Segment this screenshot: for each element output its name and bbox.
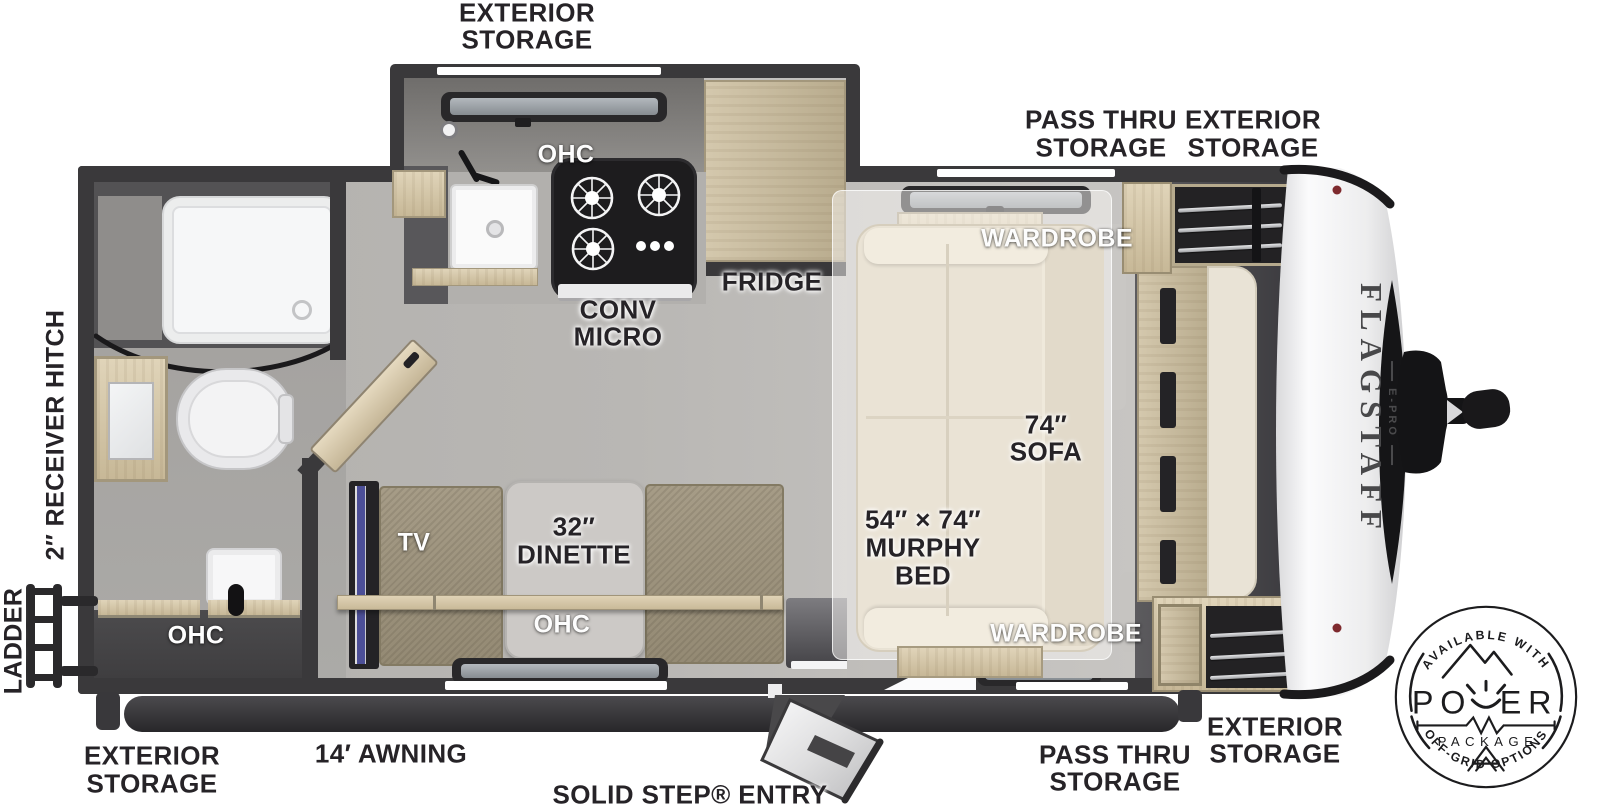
window-strip-top-right — [937, 169, 1115, 177]
mirror — [108, 382, 154, 460]
propane-cover — [1396, 350, 1448, 473]
sink-cabinet-edge — [412, 268, 538, 286]
vanity-counter-left — [98, 600, 200, 618]
front-column-slot-3 — [1160, 456, 1176, 512]
flagstaff-logo-text: FLAGSTAFF — [1353, 283, 1389, 537]
cooktop — [551, 158, 697, 300]
bath-wall-lower — [302, 458, 318, 678]
label-pass-thru-top-1: PASS THRU — [1025, 105, 1177, 136]
fridge-cabinet — [704, 80, 846, 262]
label-ohc-dinette: OHC — [534, 611, 591, 640]
marker-light-bottom — [1333, 624, 1342, 633]
rear-ladder — [24, 582, 100, 692]
front-column-slot-1 — [1160, 288, 1176, 344]
passthru-bottom-door — [1158, 604, 1202, 686]
label-ohc-bath: OHC — [168, 622, 225, 651]
rv-floorplan: FLAGSTAFF E-PRO — [0, 0, 1600, 808]
ohc-shelf-notch-1 — [433, 595, 436, 610]
dinette-bench-left — [379, 486, 503, 666]
power-package-badge: AVAILABLE WITH PO ER PACKAGE OFF-GRID OP… — [1388, 599, 1584, 795]
front-column-slot-2 — [1160, 372, 1176, 428]
toilet — [176, 368, 294, 470]
vanity-sink — [206, 548, 282, 606]
label-fridge: FRIDGE — [722, 267, 823, 298]
label-murphy-2: MURPHY — [865, 533, 980, 564]
ohc-shelf — [337, 595, 783, 610]
label-ohc-kitchen: OHC — [538, 141, 595, 170]
label-pass-thru-top-2: STORAGE — [1036, 133, 1167, 164]
label-exterior-storage-top-right-2: STORAGE — [1188, 133, 1319, 164]
marker-light-top — [1333, 186, 1342, 195]
tv-accent — [355, 486, 366, 664]
label-tv: TV — [398, 529, 431, 558]
awning-bracket-left — [96, 692, 120, 730]
ohc-shelf-notch-2 — [760, 595, 763, 610]
label-pass-thru-bottom-2: STORAGE — [1050, 767, 1181, 798]
label-dinette-2: DINETTE — [517, 540, 631, 571]
toilet-hinge — [278, 394, 294, 444]
faucet-base — [440, 121, 458, 139]
awning-bar — [124, 696, 1180, 732]
vanity-counter-right — [208, 600, 300, 618]
label-wardrobe-top: WARDROBE — [981, 225, 1133, 254]
label-murphy-1: 54″ × 74″ — [865, 505, 981, 536]
window-strip-bottom-left — [445, 681, 667, 690]
window-strip-slideout — [437, 67, 661, 75]
kitchen-corner-shelf — [392, 170, 446, 218]
tub-bench — [98, 196, 162, 340]
label-wardrobe-bottom: WARDROBE — [990, 620, 1142, 649]
kitchen-window-glass — [450, 98, 658, 115]
badge-word-left: PO — [1412, 685, 1472, 721]
kitchen-window-latch — [515, 118, 531, 127]
badge-word-right: ER — [1500, 685, 1559, 721]
label-exterior-storage-bottom-left-1: EXTERIOR — [84, 741, 220, 772]
flagstaff-sub-text: E-PRO — [1386, 388, 1398, 438]
wardrobe-cabinet-bottom — [897, 646, 1043, 678]
dinette-bench-right — [645, 484, 784, 664]
label-sofa-2: SOFA — [1010, 437, 1082, 468]
label-murphy-3: BED — [895, 561, 951, 592]
door-handle — [402, 351, 420, 370]
logo-dash-right — [1391, 445, 1393, 465]
label-solid-step-entry: SOLID STEP® ENTRY — [553, 780, 828, 808]
bathtub — [162, 196, 342, 344]
sofa-seam-horizontal — [866, 416, 1042, 419]
label-conv-micro-2: MICRO — [574, 322, 663, 353]
bath-wall-upper — [330, 182, 346, 360]
front-column-slot-4 — [1160, 540, 1176, 584]
label-exterior-storage-top-right-1: EXTERIOR — [1185, 105, 1321, 136]
label-receiver-hitch: 2″ RECEIVER HITCH — [42, 310, 71, 561]
label-dinette-1: 32″ — [553, 512, 596, 543]
vanity-faucet — [228, 584, 244, 616]
sink-drain — [486, 220, 504, 238]
dinette-window-glass — [461, 664, 659, 678]
label-ladder: LADDER — [0, 588, 29, 695]
label-exterior-storage-bottom-left-2: STORAGE — [87, 769, 218, 800]
window-strip-bottom-right — [1016, 682, 1128, 690]
hitch-knob — [1460, 387, 1512, 431]
logo-dash-left — [1391, 361, 1393, 381]
label-exterior-storage-top-2: STORAGE — [462, 25, 593, 56]
tub-drain — [292, 300, 312, 320]
label-awning: 14′ AWNING — [315, 739, 467, 770]
label-exterior-storage-bottom-right-2: STORAGE — [1210, 739, 1341, 770]
awning-bracket-right — [1178, 690, 1202, 722]
cooktop-burners — [551, 158, 697, 300]
